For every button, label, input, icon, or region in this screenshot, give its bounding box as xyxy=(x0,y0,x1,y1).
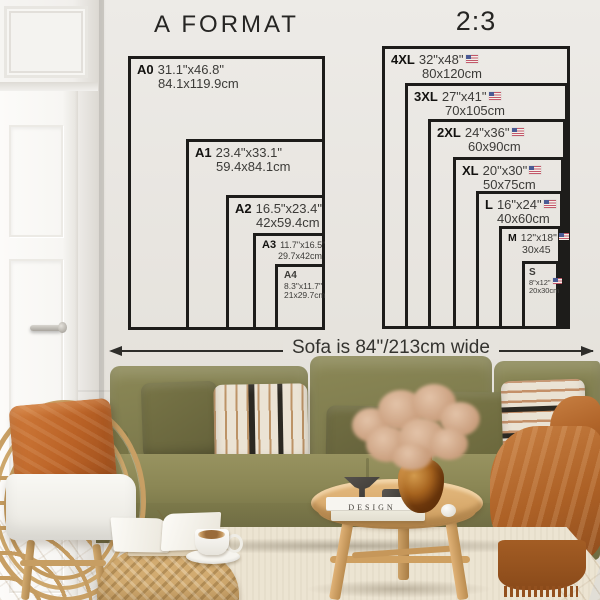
a-format-title: A FORMAT xyxy=(128,11,325,39)
size-box-s: S 8"x12" 20x30cm xyxy=(522,261,559,329)
throw-blanket xyxy=(498,540,586,590)
ratio-title: 2:3 xyxy=(382,6,570,37)
book-spine-text: DESIGN xyxy=(348,503,395,512)
arrow-right-icon xyxy=(581,346,594,356)
door-handle-rosette xyxy=(58,322,67,333)
us-flag-icon xyxy=(466,55,478,63)
us-flag-icon xyxy=(529,166,541,174)
coffee-surface xyxy=(198,530,225,539)
us-flag-icon xyxy=(544,200,556,208)
throw-fringe xyxy=(504,586,578,597)
pillow-olive xyxy=(141,381,220,460)
arrow-left-icon xyxy=(109,346,122,356)
poster-size-guide-mockup: A FORMAT 2:3 A031.1"x46.8" 84.1x119.9cm … xyxy=(0,0,600,600)
door-frame xyxy=(0,82,98,91)
us-flag-icon xyxy=(559,233,569,240)
table-brace xyxy=(330,556,470,563)
us-flag-icon xyxy=(512,128,524,136)
size-box-a4: A4 8.3"x11.7" 21x29.7cm xyxy=(275,264,325,330)
us-flag-icon xyxy=(553,278,562,284)
door-panel xyxy=(9,125,63,237)
egg-ornament xyxy=(441,504,456,517)
us-flag-icon xyxy=(489,92,501,100)
chair-rail xyxy=(20,560,106,566)
wall-molding-panel xyxy=(4,6,88,78)
